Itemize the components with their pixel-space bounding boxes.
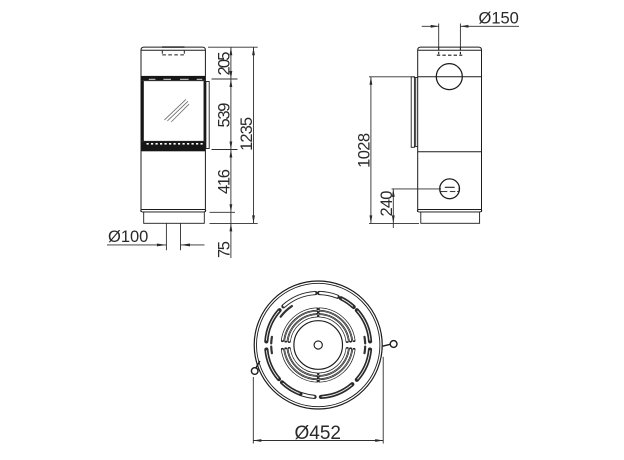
svg-text:205: 205: [216, 52, 234, 76]
svg-text:1028: 1028: [356, 133, 374, 168]
svg-text:240: 240: [378, 191, 396, 217]
svg-text:Ø150: Ø150: [479, 10, 519, 28]
svg-text:Ø452: Ø452: [295, 423, 341, 444]
svg-text:539: 539: [216, 103, 234, 128]
svg-text:75: 75: [216, 241, 234, 258]
svg-text:1235: 1235: [238, 117, 256, 151]
svg-text:416: 416: [216, 169, 234, 194]
svg-text:Ø100: Ø100: [108, 228, 148, 246]
